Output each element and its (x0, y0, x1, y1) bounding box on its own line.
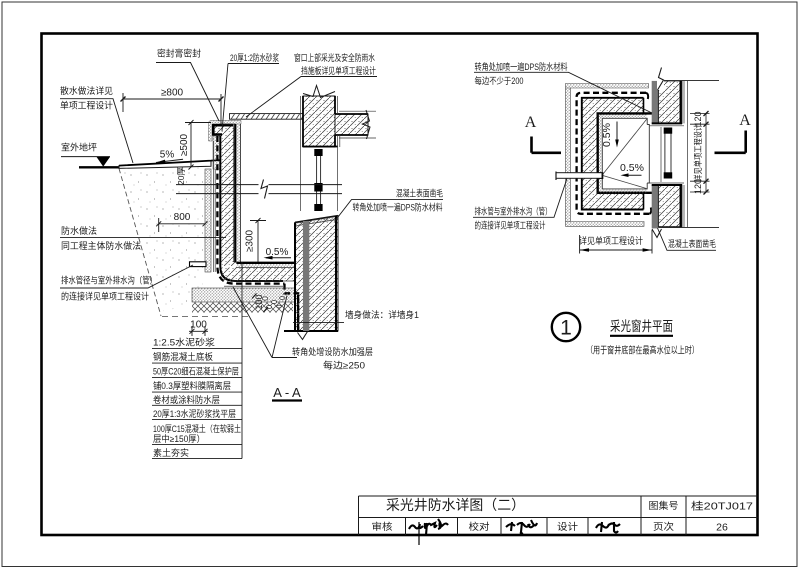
svg-text:0.5%: 0.5% (620, 162, 644, 174)
svg-text:100: 100 (254, 294, 264, 309)
svg-text:排水管径与室外排水沟（管）: 排水管径与室外排水沟（管） (61, 275, 157, 286)
svg-text:≥800: ≥800 (161, 88, 184, 99)
svg-text:（用于窗井底部在最高水位以上时）: （用于窗井底部在最高水位以上时） (586, 345, 699, 357)
svg-text:1: 1 (560, 317, 572, 340)
svg-text:单项工程设计: 单项工程设计 (60, 100, 113, 111)
svg-text:墙身做法：详墙身1: 墙身做法：详墙身1 (345, 309, 419, 320)
svg-text:0.5%: 0.5% (601, 123, 613, 147)
svg-text:的连接详见单项工程设计: 的连接详见单项工程设计 (61, 291, 149, 302)
svg-text:卷材或涂料防水层: 卷材或涂料防水层 (153, 394, 220, 405)
svg-text:转角处加喷一遍DPS防水材料: 转角处加喷一遍DPS防水材料 (475, 61, 568, 72)
svg-text:≥500: ≥500 (179, 133, 190, 156)
svg-text:20厚1:2防水砂浆: 20厚1:2防水砂浆 (230, 52, 279, 63)
svg-text:混凝土表面凿毛: 混凝土表面凿毛 (668, 238, 716, 249)
svg-text:20厚1:3水泥砂浆找平层: 20厚1:3水泥砂浆找平层 (153, 408, 236, 419)
svg-text:排水管与室外排水沟（管）: 排水管与室外排水沟（管） (475, 206, 552, 217)
svg-text:采光井防水详图（二）: 采光井防水详图（二） (386, 497, 525, 513)
svg-text:50厚C20细石混凝土保护层: 50厚C20细石混凝土保护层 (153, 366, 239, 377)
svg-text:素土夯实: 素土夯实 (153, 447, 189, 458)
svg-text:转角处增设防水加强层: 转角处增设防水加强层 (292, 346, 373, 357)
svg-text:26: 26 (716, 522, 728, 534)
svg-text:桂20TJ017: 桂20TJ017 (691, 500, 753, 513)
svg-text:窗口上部采光及安全防雨水: 窗口上部采光及安全防雨水 (294, 52, 375, 63)
svg-text:≥300: ≥300 (245, 229, 256, 252)
svg-text:的连接详见单项工程设计: 的连接详见单项工程设计 (475, 220, 546, 231)
svg-text:1:2.5水泥砂浆: 1:2.5水泥砂浆 (153, 337, 215, 348)
svg-text:同工程主体防水做法: 同工程主体防水做法 (61, 240, 141, 251)
svg-text:采光窗井平面: 采光窗井平面 (610, 318, 673, 334)
svg-text:5%: 5% (160, 150, 175, 161)
svg-text:设计: 设计 (557, 521, 579, 533)
svg-text:A - A: A - A (273, 385, 301, 400)
svg-text:散水做法详见: 散水做法详见 (60, 85, 113, 96)
svg-text:铺0.3厚塑料膜隔离层: 铺0.3厚塑料膜隔离层 (153, 380, 231, 391)
svg-text:密封膏密封: 密封膏密封 (157, 48, 201, 59)
svg-text:100: 100 (190, 320, 207, 331)
svg-text:转角处加喷一遍DPS防水材料: 转角处加喷一遍DPS防水材料 (353, 202, 443, 213)
svg-text:页次: 页次 (653, 521, 675, 533)
svg-text:0.5%: 0.5% (266, 247, 289, 258)
svg-text:校对: 校对 (469, 521, 491, 533)
svg-text:审核: 审核 (372, 521, 394, 533)
svg-text:防水做法: 防水做法 (61, 225, 97, 236)
svg-text:每边不少于200: 每边不少于200 (475, 75, 524, 86)
svg-text:室外地坪: 室外地坪 (61, 142, 97, 153)
svg-text:800: 800 (174, 212, 191, 223)
svg-text:层中≥150厚）: 层中≥150厚） (153, 433, 205, 444)
svg-text:混凝土表面凿毛: 混凝土表面凿毛 (396, 188, 443, 199)
svg-text:A: A (525, 114, 537, 131)
svg-text:详见单项工程设计: 详见单项工程设计 (693, 123, 703, 181)
svg-text:钢筋混凝土底板: 钢筋混凝土底板 (153, 351, 213, 362)
svg-text:图集号: 图集号 (649, 500, 679, 512)
svg-text:100厚C15混凝土（在软弱土: 100厚C15混凝土（在软弱土 (153, 423, 241, 434)
svg-text:20厚: 20厚 (176, 167, 186, 185)
svg-text:A: A (739, 112, 751, 129)
svg-text:120: 120 (693, 179, 703, 194)
svg-text:每边≥250: 每边≥250 (323, 360, 365, 371)
svg-text:详见单项工程设计: 详见单项工程设计 (579, 235, 643, 246)
svg-text:挡施板详见单项工程设计: 挡施板详见单项工程设计 (301, 65, 376, 76)
